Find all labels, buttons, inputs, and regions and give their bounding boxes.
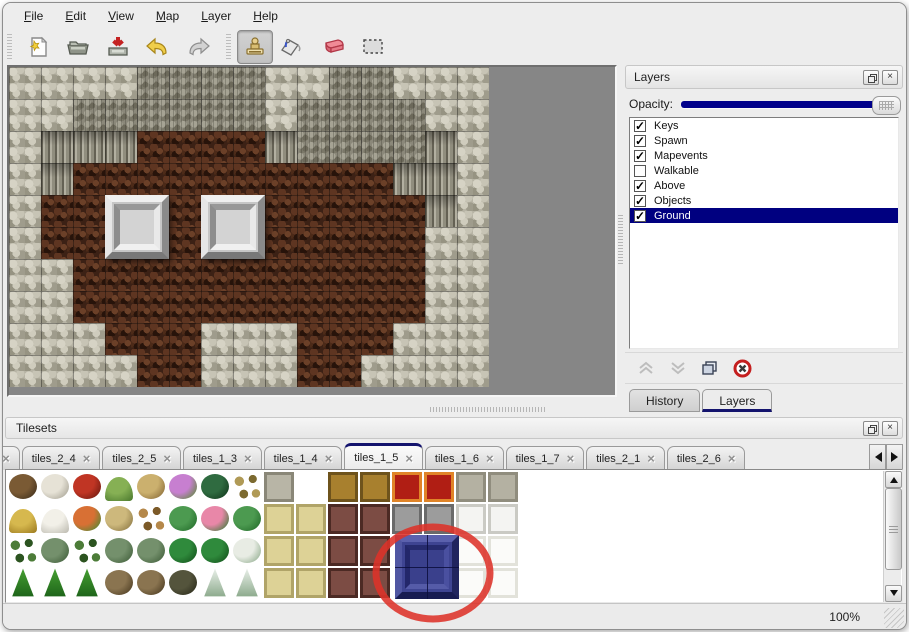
tab-close-icon[interactable]: × <box>486 452 494 465</box>
map-tile-cave-floor[interactable] <box>361 323 393 355</box>
tileset-cell-blob[interactable] <box>103 503 135 535</box>
map-tile-cliff-wall[interactable] <box>393 163 425 195</box>
tileset-cell-sprig[interactable] <box>71 535 103 567</box>
map-tile-cliff-wall[interactable] <box>265 131 297 163</box>
map-tile-cliff-top[interactable] <box>297 99 329 131</box>
map-tile-stone-ground[interactable] <box>425 355 457 387</box>
tileset-cell-blob[interactable] <box>231 503 263 535</box>
map-tile-cliff-top[interactable] <box>297 131 329 163</box>
scroll-tabs-right-button[interactable] <box>886 444 903 470</box>
tileset-cell-blob[interactable] <box>135 471 167 503</box>
opacity-label: Opacity: <box>629 97 673 111</box>
map-tile-cave-floor[interactable] <box>297 163 329 195</box>
stone-platform[interactable] <box>201 195 265 259</box>
tab-close-icon[interactable]: × <box>325 452 333 465</box>
new-file-button[interactable] <box>18 30 58 64</box>
map-tile-stone-ground[interactable] <box>9 67 41 99</box>
tileset-cell-blob[interactable] <box>39 535 71 567</box>
menu-layer[interactable]: Layer <box>190 5 242 27</box>
map-tile-stone-ground[interactable] <box>457 131 489 163</box>
map-tile-stone-ground[interactable] <box>425 291 457 323</box>
tileset-cell-flat[interactable] <box>327 503 359 535</box>
fill-icon <box>279 34 307 60</box>
map-tile-cave-floor[interactable] <box>233 259 265 291</box>
map-tile-cliff-top[interactable] <box>361 131 393 163</box>
tileset-cell-sprig[interactable] <box>135 503 167 535</box>
menu-map[interactable]: Map <box>145 5 190 27</box>
opacity-slider[interactable] <box>681 95 901 113</box>
layer-visibility-checkbox[interactable]: ✓ <box>634 195 646 207</box>
tileset-cell-blob[interactable] <box>103 535 135 567</box>
tileset-cell-blob[interactable] <box>167 567 199 599</box>
tab-close-icon[interactable]: × <box>83 452 91 465</box>
map-tile-stone-ground[interactable] <box>457 195 489 227</box>
select-button[interactable] <box>353 30 393 64</box>
resize-grip-icon[interactable] <box>884 608 904 628</box>
tileset-cell-flat[interactable] <box>455 567 487 599</box>
map-tile-stone-ground[interactable] <box>457 323 489 355</box>
layer-visibility-checkbox[interactable]: ✓ <box>634 180 646 192</box>
map-tile-cave-floor[interactable] <box>137 163 169 195</box>
map-tile-cave-floor[interactable] <box>361 291 393 323</box>
tileset-cell-flat[interactable] <box>295 567 327 599</box>
stamp-button[interactable] <box>237 30 273 64</box>
layer-name: Keys <box>654 120 678 132</box>
tileset-cell-flat[interactable] <box>359 471 391 503</box>
map-tile-cliff-top[interactable] <box>169 67 201 99</box>
tileset-cell-flat[interactable] <box>487 503 519 535</box>
tileset-tab-tiles_1_3[interactable]: tiles_1_3× <box>183 446 262 470</box>
tileset-cell-mound[interactable] <box>103 471 135 503</box>
map-tile-cave-floor[interactable] <box>297 259 329 291</box>
tileset-cell-blob[interactable] <box>199 535 231 567</box>
tileset-cell-mound[interactable] <box>7 503 39 535</box>
tileset-tab-label: tiles_1_3 <box>193 453 237 465</box>
map-tile-cliff-top[interactable] <box>361 99 393 131</box>
tileset-cell-cone[interactable] <box>39 567 71 599</box>
tileset-tab-tiles_2_4[interactable]: tiles_2_4× <box>22 446 101 470</box>
tileset-cell-flat[interactable] <box>487 535 519 567</box>
tileset-cell-flat[interactable] <box>263 503 295 535</box>
map-tile-stone-ground[interactable] <box>9 163 41 195</box>
tileset-cell-blob[interactable] <box>135 567 167 599</box>
map-tile-stone-ground[interactable] <box>297 67 329 99</box>
map-tile-cave-floor[interactable] <box>233 291 265 323</box>
map-tile-stone-ground[interactable] <box>425 227 457 259</box>
map-tile-cave-floor[interactable] <box>41 227 73 259</box>
map-tile-stone-ground[interactable] <box>41 323 73 355</box>
map-tile-cave-floor[interactable] <box>137 355 169 387</box>
map-tile-cave-floor[interactable] <box>329 259 361 291</box>
map-tile-cliff-top[interactable] <box>201 67 233 99</box>
tileset-cell-blob[interactable] <box>231 535 263 567</box>
panel-tab-history[interactable]: History <box>629 389 700 412</box>
map-tile-cave-floor[interactable] <box>169 195 201 227</box>
map-tile-cave-floor[interactable] <box>329 291 361 323</box>
toolbar-grip[interactable] <box>7 34 12 60</box>
tileset-cell-flat[interactable] <box>327 535 359 567</box>
tileset-cell-blob[interactable] <box>71 471 103 503</box>
redo-icon <box>184 34 212 60</box>
tab-close-icon[interactable]: × <box>163 452 171 465</box>
tileset-cell-blob[interactable] <box>167 471 199 503</box>
tileset-cell-flat[interactable] <box>455 503 487 535</box>
tileset-cell-flat[interactable] <box>487 567 519 599</box>
map-tile-stone-ground[interactable] <box>73 67 105 99</box>
float-panel-button[interactable] <box>863 421 879 436</box>
map-tile-cave-floor[interactable] <box>137 131 169 163</box>
panel-tab-layers[interactable]: Layers <box>702 389 772 412</box>
scroll-up-button[interactable] <box>885 471 902 488</box>
map-tile-cave-floor[interactable] <box>169 259 201 291</box>
map-tile-stone-ground[interactable] <box>9 227 41 259</box>
map-tile-cave-floor[interactable] <box>105 163 137 195</box>
map-tile-cave-floor[interactable] <box>169 227 201 259</box>
tab-close-icon[interactable]: × <box>728 452 736 465</box>
toolbar-grip[interactable] <box>226 34 231 60</box>
undo-button[interactable] <box>138 30 178 64</box>
map-tile-stone-ground[interactable] <box>393 323 425 355</box>
scroll-down-button[interactable] <box>885 585 902 602</box>
restore-icon <box>868 425 875 432</box>
map-tile-cave-floor[interactable] <box>137 291 169 323</box>
map-tile-stone-ground[interactable] <box>105 355 137 387</box>
chevron-down-icon <box>669 359 687 377</box>
map-tile-stone-ground[interactable] <box>73 323 105 355</box>
tileset-tab-3[interactable]: 3× <box>2 446 20 470</box>
eraser-button[interactable] <box>313 30 353 64</box>
map-tile-stone-ground[interactable] <box>457 99 489 131</box>
map-tile-cliff-top[interactable] <box>73 99 105 131</box>
map-tile-cave-floor[interactable] <box>393 291 425 323</box>
map-tile-cave-floor[interactable] <box>329 195 361 227</box>
map-tile-stone-ground[interactable] <box>9 131 41 163</box>
layer-row-above[interactable]: ✓Above <box>630 178 898 193</box>
map-tile-cave-floor[interactable] <box>105 323 137 355</box>
map-tile-stone-ground[interactable] <box>233 355 265 387</box>
map-tile-stone-ground[interactable] <box>425 99 457 131</box>
opacity-slider-handle[interactable] <box>872 96 901 115</box>
map-tile-cave-floor[interactable] <box>73 291 105 323</box>
map-tile-cliff-top[interactable] <box>233 67 265 99</box>
map-tile-cave-floor[interactable] <box>233 163 265 195</box>
map-tile-cave-floor[interactable] <box>73 195 105 227</box>
map-tile-cave-floor[interactable] <box>297 195 329 227</box>
map-tile-stone-ground[interactable] <box>457 259 489 291</box>
layer-visibility-checkbox[interactable] <box>634 165 646 177</box>
tileset-cell-sprig[interactable] <box>7 535 39 567</box>
map-tile-cave-floor[interactable] <box>297 227 329 259</box>
tileset-tab-tiles_1_5[interactable]: tiles_1_5× <box>344 443 423 470</box>
map-tile-stone-ground[interactable] <box>265 67 297 99</box>
open-button[interactable] <box>58 30 98 64</box>
tileset-cell-cone[interactable] <box>199 567 231 599</box>
map-tile-cave-floor[interactable] <box>265 195 297 227</box>
map-tile-cave-floor[interactable] <box>201 163 233 195</box>
tileset-cell-flat[interactable] <box>391 503 423 535</box>
map-tile-stone-ground[interactable] <box>41 291 73 323</box>
map-tile-cave-floor[interactable] <box>169 163 201 195</box>
map-tile-cave-floor[interactable] <box>329 355 361 387</box>
close-panel-button[interactable]: × <box>882 70 898 85</box>
tileset-cell-flat[interactable] <box>455 535 487 567</box>
delete-layer-button[interactable] <box>731 357 753 379</box>
map-tile-cliff-top[interactable] <box>329 131 361 163</box>
map-tile-cave-floor[interactable] <box>361 227 393 259</box>
map-tile-cliff-top[interactable] <box>329 67 361 99</box>
tileset-cell-blob[interactable] <box>103 567 135 599</box>
map-tile-cave-floor[interactable] <box>169 291 201 323</box>
map-tile-cliff-wall[interactable] <box>41 131 73 163</box>
map-tile-stone-ground[interactable] <box>73 355 105 387</box>
panel-tab-bar: HistoryLayers <box>629 389 774 412</box>
map-tile-cliff-top[interactable] <box>201 99 233 131</box>
map-tile-cave-floor[interactable] <box>361 259 393 291</box>
tileset-tab-tiles_1_4[interactable]: tiles_1_4× <box>264 446 343 470</box>
new-file-icon <box>25 34 51 60</box>
map-tile-cliff-top[interactable] <box>137 67 169 99</box>
map-tile-cave-floor[interactable] <box>137 259 169 291</box>
tileset-cell-flat[interactable] <box>487 471 519 503</box>
horizontal-splitter[interactable] <box>430 407 546 412</box>
stone-platform[interactable] <box>105 195 169 259</box>
layer-visibility-checkbox[interactable]: ✓ <box>634 120 646 132</box>
map-tile-cliff-wall[interactable] <box>73 131 105 163</box>
arrow-right-icon <box>891 452 903 462</box>
menu-help[interactable]: Help <box>242 5 289 27</box>
tab-close-icon[interactable]: × <box>2 452 10 465</box>
map-tile-cave-floor[interactable] <box>393 259 425 291</box>
undo-icon <box>144 34 172 60</box>
tileset-cell-flat[interactable] <box>359 503 391 535</box>
tileset-cell-flat[interactable] <box>295 535 327 567</box>
map-tile-stone-ground[interactable] <box>265 323 297 355</box>
map-tile-cave-floor[interactable] <box>105 259 137 291</box>
map-tile-cliff-top[interactable] <box>137 99 169 131</box>
map-tile-cave-floor[interactable] <box>169 323 201 355</box>
map-tile-cliff-wall[interactable] <box>105 131 137 163</box>
map-tile-stone-ground[interactable] <box>425 259 457 291</box>
tab-close-icon[interactable]: × <box>244 452 252 465</box>
map-tile-stone-ground[interactable] <box>457 163 489 195</box>
arrow-up-icon <box>890 473 898 483</box>
layer-row-ground[interactable]: ✓Ground <box>630 208 898 223</box>
tileset-cell-blob[interactable] <box>167 535 199 567</box>
map-tile-cave-floor[interactable] <box>265 259 297 291</box>
redo-button[interactable] <box>178 30 218 64</box>
tileset-tab-tiles_2_5[interactable]: tiles_2_5× <box>102 446 181 470</box>
tileset-tab-tiles_1_6[interactable]: tiles_1_6× <box>425 446 504 470</box>
map-tile-stone-ground[interactable] <box>457 67 489 99</box>
map-tile-stone-ground[interactable] <box>361 355 393 387</box>
map-tile-stone-ground[interactable] <box>9 99 41 131</box>
map-tile-stone-ground[interactable] <box>9 195 41 227</box>
map-tile-stone-ground[interactable] <box>201 355 233 387</box>
layer-name: Mapevents <box>654 150 708 162</box>
map-canvas[interactable] <box>7 65 617 397</box>
tileset-tab-label: tiles_1_4 <box>274 453 318 465</box>
move-layer-up-button[interactable] <box>635 357 657 379</box>
map-tile-cave-floor[interactable] <box>105 291 137 323</box>
tileset-content[interactable] <box>5 469 903 603</box>
map-tile-stone-ground[interactable] <box>393 67 425 99</box>
tileset-cell-flat[interactable] <box>391 471 423 503</box>
layer-visibility-checkbox[interactable]: ✓ <box>634 150 646 162</box>
map-tile-cliff-wall[interactable] <box>425 131 457 163</box>
tileset-cell-blob[interactable] <box>135 535 167 567</box>
map-tile-cave-floor[interactable] <box>41 195 73 227</box>
tileset-tab-tiles_1_7[interactable]: tiles_1_7× <box>506 446 585 470</box>
vertical-splitter[interactable] <box>618 215 623 265</box>
map-tile-stone-ground[interactable] <box>457 355 489 387</box>
map-tile-stone-ground[interactable] <box>457 227 489 259</box>
map-tile-cave-floor[interactable] <box>137 323 169 355</box>
tileset-tab-label: tiles_2_1 <box>596 453 640 465</box>
tab-close-icon[interactable]: × <box>405 452 413 465</box>
tileset-cell-blob[interactable] <box>167 503 199 535</box>
tab-close-icon[interactable]: × <box>567 452 575 465</box>
tileset-cell-sprig[interactable] <box>231 471 263 503</box>
map-tile-cave-floor[interactable] <box>265 163 297 195</box>
tileset-cell-cone[interactable] <box>71 567 103 599</box>
map-tile-stone-ground[interactable] <box>9 355 41 387</box>
float-panel-button[interactable] <box>863 70 879 85</box>
menu-edit[interactable]: Edit <box>54 5 97 27</box>
tileset-cell-flat[interactable] <box>295 503 327 535</box>
map-tile-cave-floor[interactable] <box>393 227 425 259</box>
map-tile-cliff-top[interactable] <box>233 99 265 131</box>
tilesets-titlebar: Tilesets × <box>5 417 903 439</box>
tileset-cell-flat[interactable] <box>263 471 295 503</box>
map-tile-cave-floor[interactable] <box>201 259 233 291</box>
tileset-cell-flat[interactable] <box>327 471 359 503</box>
menu-file[interactable]: File <box>13 5 54 27</box>
map-tile-cave-floor[interactable] <box>169 131 201 163</box>
map-tile-stone-ground[interactable] <box>41 67 73 99</box>
map-tile-cave-floor[interactable] <box>329 163 361 195</box>
tileset-cell-mound[interactable] <box>39 503 71 535</box>
tileset-cell-empty[interactable] <box>295 471 327 503</box>
map-tile-cliff-wall[interactable] <box>425 195 457 227</box>
scroll-tabs-left-button[interactable] <box>869 444 886 470</box>
map-tile-stone-ground[interactable] <box>9 291 41 323</box>
map-tile-cave-floor[interactable] <box>265 227 297 259</box>
map-tile-cave-floor[interactable] <box>73 163 105 195</box>
map-tile-stone-ground[interactable] <box>457 291 489 323</box>
tileset-cell-flat[interactable] <box>359 567 391 599</box>
map-tile-cliff-wall[interactable] <box>41 163 73 195</box>
map-tile-cave-floor[interactable] <box>73 227 105 259</box>
map-tile-cliff-wall[interactable] <box>425 163 457 195</box>
map-tile-stone-ground[interactable] <box>9 323 41 355</box>
map-tile-stone-ground[interactable] <box>425 67 457 99</box>
tileset-cell-cone[interactable] <box>7 567 39 599</box>
zoom-level: 100% <box>829 610 860 624</box>
selected-blue-tile[interactable] <box>395 535 459 599</box>
save-button[interactable] <box>98 30 138 64</box>
tileset-cell-blob[interactable] <box>199 503 231 535</box>
map-tile-cliff-top[interactable] <box>361 67 393 99</box>
close-panel-button[interactable]: × <box>882 421 898 436</box>
map-tile-cave-floor[interactable] <box>233 131 265 163</box>
tab-close-icon[interactable]: × <box>647 452 655 465</box>
tileset-cell-blob[interactable] <box>71 503 103 535</box>
map-tile-stone-ground[interactable] <box>265 355 297 387</box>
tileset-cell-flat[interactable] <box>423 503 455 535</box>
map-tile-stone-ground[interactable] <box>393 355 425 387</box>
duplicate-layer-button[interactable] <box>699 357 721 379</box>
map-tile-cave-floor[interactable] <box>393 195 425 227</box>
layer-row-objects[interactable]: ✓Objects <box>630 193 898 208</box>
tileset-cell-flat[interactable] <box>263 567 295 599</box>
save-icon <box>105 34 131 60</box>
map-tile-cave-floor[interactable] <box>329 227 361 259</box>
tileset-cell-flat[interactable] <box>455 471 487 503</box>
eraser-icon <box>318 35 348 59</box>
map-tile-stone-ground[interactable] <box>233 323 265 355</box>
stamp-icon <box>243 35 267 59</box>
tileset-scrollbar[interactable] <box>883 471 901 602</box>
tileset-cell-flat[interactable] <box>327 567 359 599</box>
menu-view[interactable]: View <box>97 5 145 27</box>
move-layer-down-button[interactable] <box>667 357 689 379</box>
layer-row-spawn[interactable]: ✓Spawn <box>630 133 898 148</box>
tileset-cell-flat[interactable] <box>263 535 295 567</box>
tileset-cell-flat[interactable] <box>423 471 455 503</box>
map-tile-cliff-top[interactable] <box>329 99 361 131</box>
layer-row-mapevents[interactable]: ✓Mapevents <box>630 148 898 163</box>
tileset-cell-blob[interactable] <box>39 471 71 503</box>
map-tile-cave-floor[interactable] <box>201 131 233 163</box>
map-tile-cave-floor[interactable] <box>201 291 233 323</box>
tileset-cell-blob[interactable] <box>199 471 231 503</box>
fill-button[interactable] <box>273 30 313 64</box>
map-tile-stone-ground[interactable] <box>41 99 73 131</box>
tileset-tab-tiles_2_6[interactable]: tiles_2_6× <box>667 446 746 470</box>
layer-row-keys[interactable]: ✓Keys <box>630 118 898 133</box>
map-tile-stone-ground[interactable] <box>105 67 137 99</box>
scrollbar-thumb[interactable] <box>885 488 902 570</box>
map-tile-cave-floor[interactable] <box>361 163 393 195</box>
map-tile-cave-floor[interactable] <box>169 355 201 387</box>
map-tile-stone-ground[interactable] <box>265 99 297 131</box>
map-tile-stone-ground[interactable] <box>41 355 73 387</box>
map-tile-cliff-top[interactable] <box>393 99 425 131</box>
map-tile-cave-floor[interactable] <box>297 355 329 387</box>
map-tile-cave-floor[interactable] <box>297 291 329 323</box>
layer-visibility-checkbox[interactable]: ✓ <box>634 210 646 222</box>
map-tile-stone-ground[interactable] <box>9 259 41 291</box>
map-tile-cave-floor[interactable] <box>361 195 393 227</box>
map-tile-stone-ground[interactable] <box>201 323 233 355</box>
tileset-cell-cone[interactable] <box>231 567 263 599</box>
map-tile-stone-ground[interactable] <box>425 323 457 355</box>
tileset-cell-blob[interactable] <box>7 471 39 503</box>
map-tile-cave-floor[interactable] <box>329 323 361 355</box>
layer-row-walkable[interactable]: Walkable <box>630 163 898 178</box>
tilesets-title: Tilesets <box>16 421 860 435</box>
map-tile-cave-floor[interactable] <box>73 259 105 291</box>
map-tile-cliff-top[interactable] <box>105 99 137 131</box>
map-tile-cliff-top[interactable] <box>169 99 201 131</box>
map-tile-cave-floor[interactable] <box>297 323 329 355</box>
map-tile-cliff-top[interactable] <box>393 131 425 163</box>
map-tile-stone-ground[interactable] <box>41 259 73 291</box>
tileset-tab-tiles_2_1[interactable]: tiles_2_1× <box>586 446 665 470</box>
map-tile-cave-floor[interactable] <box>265 291 297 323</box>
layer-visibility-checkbox[interactable]: ✓ <box>634 135 646 147</box>
tileset-cell-flat[interactable] <box>359 535 391 567</box>
